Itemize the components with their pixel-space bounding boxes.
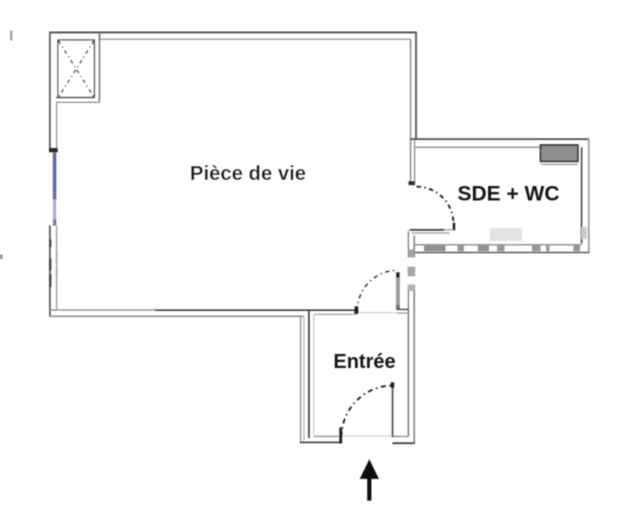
svg-text:SDE + WC: SDE + WC bbox=[457, 182, 559, 205]
svg-text:Entrée: Entrée bbox=[333, 351, 395, 373]
svg-text:Pièce de vie: Pièce de vie bbox=[190, 163, 306, 185]
